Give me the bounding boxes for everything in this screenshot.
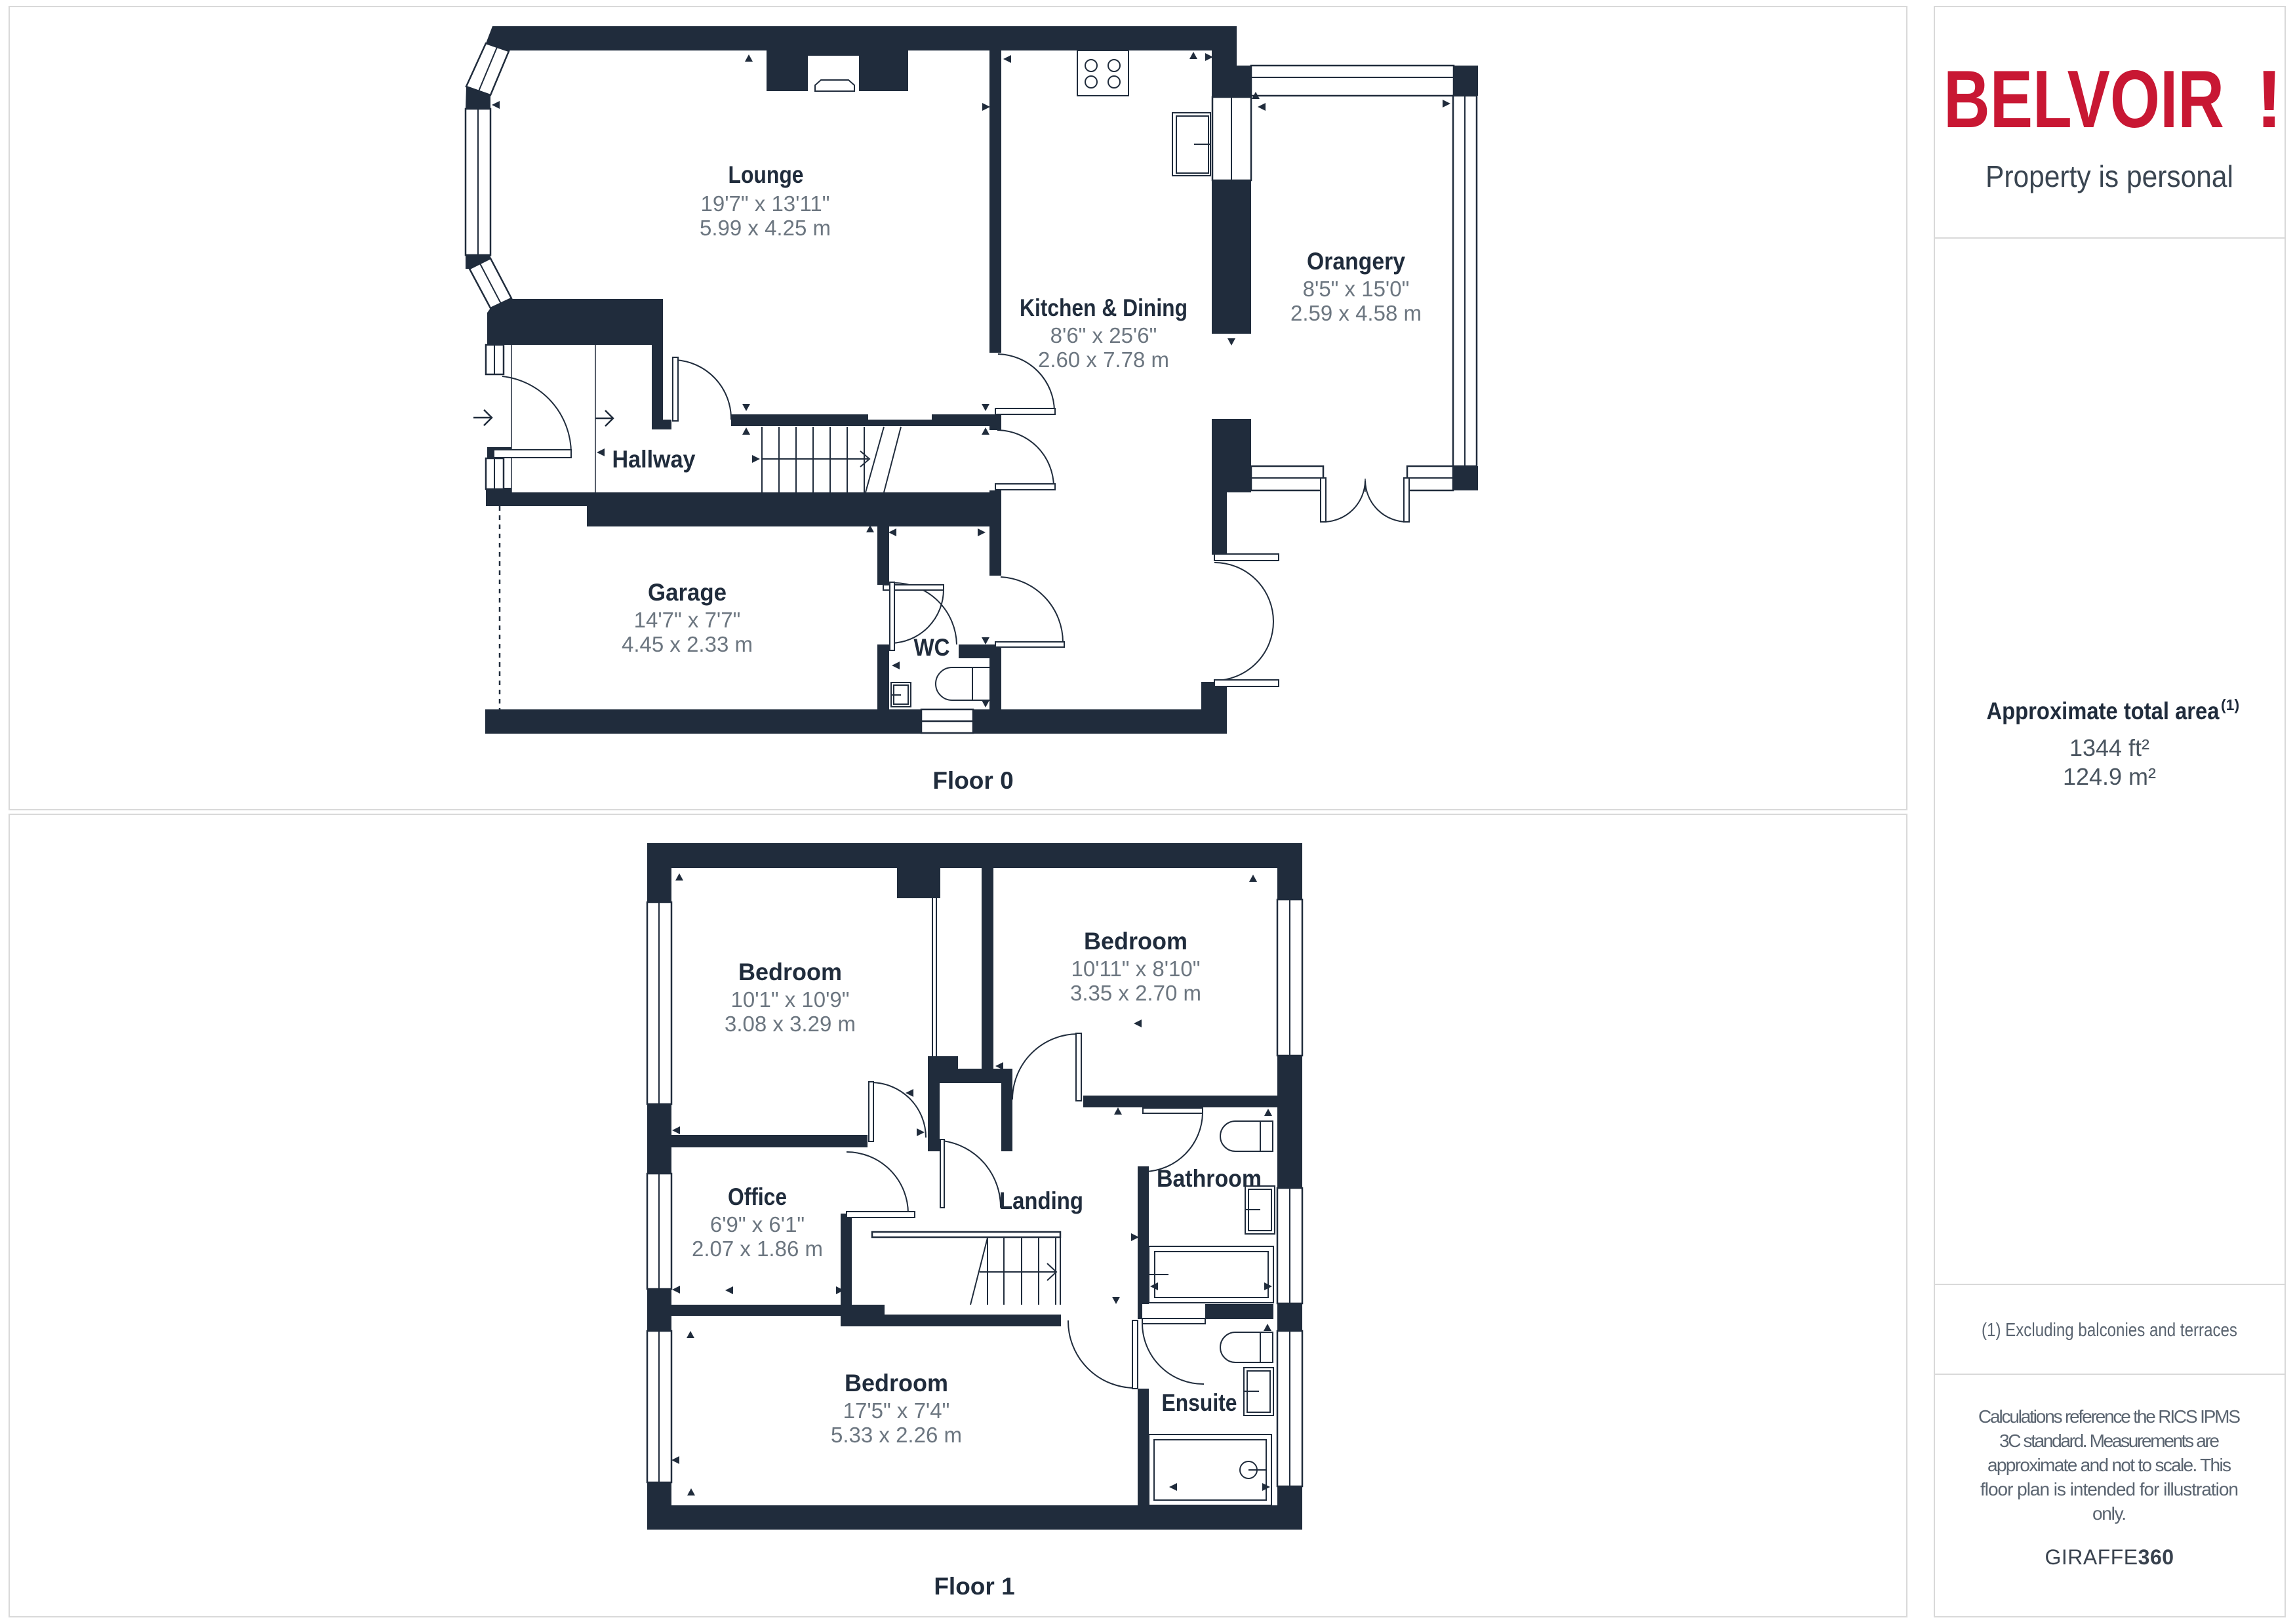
svg-text:14'7" x 7'7": 14'7" x 7'7": [634, 608, 741, 632]
svg-text:Lounge: Lounge: [728, 161, 804, 188]
svg-text:Calculations reference the RIC: Calculations reference the RICS IPMS: [1978, 1406, 2241, 1427]
svg-text:1344 ft²: 1344 ft²: [2069, 734, 2149, 761]
svg-text:Floor 0: Floor 0: [932, 767, 1013, 794]
svg-text:Approximate total area: Approximate total area: [1987, 698, 2220, 724]
svg-text:Bedroom: Bedroom: [738, 959, 842, 985]
svg-text:19'7" x 13'11": 19'7" x 13'11": [701, 191, 830, 216]
svg-text:approximate and not to scale.: approximate and not to scale. This: [1987, 1455, 2231, 1475]
svg-text:3.08 x 3.29 m: 3.08 x 3.29 m: [725, 1012, 856, 1036]
svg-text:Orangery: Orangery: [1307, 248, 1405, 275]
svg-text:BELVOIR: BELVOIR: [1944, 54, 2224, 145]
svg-text:6'9" x 6'1": 6'9" x 6'1": [710, 1212, 805, 1237]
svg-text:!: !: [2256, 54, 2283, 145]
svg-text:Property is personal: Property is personal: [1986, 159, 2233, 193]
svg-text:3.35 x 2.70 m: 3.35 x 2.70 m: [1070, 981, 1201, 1005]
svg-text:Landing: Landing: [999, 1187, 1083, 1214]
svg-text:Bedroom: Bedroom: [1084, 928, 1187, 955]
svg-text:Bathroom: Bathroom: [1157, 1165, 1262, 1192]
svg-text:Office: Office: [728, 1183, 787, 1210]
svg-text:3C standard. Measurements are: 3C standard. Measurements are: [1999, 1431, 2220, 1451]
svg-text:only.: only.: [2092, 1503, 2126, 1524]
svg-text:2.07 x 1.86 m: 2.07 x 1.86 m: [692, 1237, 823, 1261]
svg-text:floor plan is intended for ill: floor plan is intended for illustration: [1980, 1479, 2239, 1499]
svg-text:10'11" x 8'10": 10'11" x 8'10": [1071, 957, 1201, 981]
svg-text:Hallway: Hallway: [612, 446, 696, 473]
svg-text:(1): (1): [2221, 696, 2239, 713]
svg-text:WC: WC: [914, 634, 950, 661]
svg-text:Ensuite: Ensuite: [1162, 1389, 1237, 1416]
svg-text:Garage: Garage: [648, 579, 727, 606]
svg-text:2.59 x 4.58 m: 2.59 x 4.58 m: [1290, 301, 1422, 325]
svg-text:Bedroom: Bedroom: [845, 1370, 948, 1396]
svg-text:5.33 x 2.26 m: 5.33 x 2.26 m: [831, 1423, 962, 1447]
svg-text:8'6" x 25'6": 8'6" x 25'6": [1050, 323, 1157, 347]
svg-text:5.99 x 4.25 m: 5.99 x 4.25 m: [700, 216, 831, 240]
svg-text:17'5" x 7'4": 17'5" x 7'4": [843, 1398, 950, 1423]
svg-text:10'1" x 10'9": 10'1" x 10'9": [731, 987, 850, 1012]
svg-text:8'5" x 15'0": 8'5" x 15'0": [1303, 277, 1410, 301]
svg-text:2.60 x 7.78 m: 2.60 x 7.78 m: [1038, 347, 1169, 372]
svg-text:Floor 1: Floor 1: [934, 1573, 1014, 1600]
svg-text:124.9 m²: 124.9 m²: [2063, 763, 2156, 790]
svg-text:(1) Excluding balconies and te: (1) Excluding balconies and terraces: [1982, 1320, 2237, 1341]
svg-text:4.45 x 2.33 m: 4.45 x 2.33 m: [622, 632, 753, 656]
svg-text:Kitchen & Dining: Kitchen & Dining: [1020, 294, 1187, 321]
svg-text:GIRAFFE360: GIRAFFE360: [2045, 1545, 2174, 1569]
